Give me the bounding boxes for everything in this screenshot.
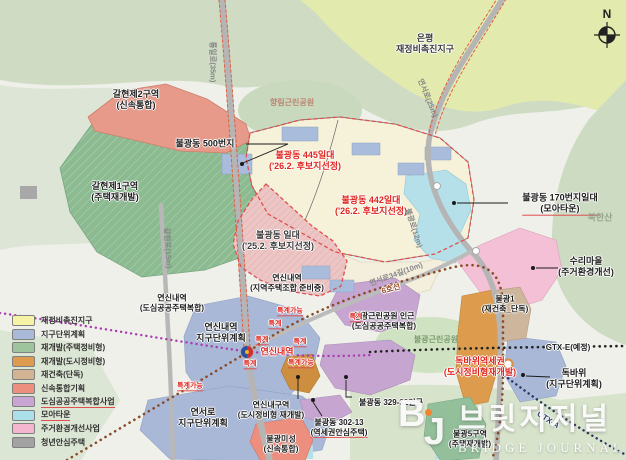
bukhansan-label: 북한산 [588, 213, 613, 224]
legend-label: 재정비촉진지구 [41, 315, 93, 326]
legend-swatch [12, 423, 35, 434]
legend-swatch [12, 383, 35, 394]
teukgye-8-label: 특계가능 [177, 382, 203, 391]
legend-item-2: 재개발(주택정비형) [12, 341, 115, 355]
bulgwang-500-label: 불광동 500번지 [176, 139, 235, 150]
legend-label: 모아타운 [41, 409, 70, 421]
dokbawi-plan-label: 독바위(지구단위계획) [546, 368, 602, 390]
teukgye-7-label: 특계가능 [288, 359, 314, 368]
yeonsinnae-district-plan-label: 연신내역지구단위계획 [196, 322, 246, 344]
legend-item-4: 재건축(단독) [12, 368, 115, 382]
legend-item-3: 재개발(도시정비형) [12, 355, 115, 369]
bulgwang-park-label: 불광근린공원 [414, 335, 458, 345]
compass-icon [594, 20, 620, 50]
bulgwang-329-label: 불광동 329-32인근 [359, 398, 423, 408]
legend-swatch [12, 356, 35, 367]
road-tongilro-label: 통일로(35m) [209, 42, 218, 83]
legend-item-1: 지구단위계획 [12, 328, 115, 342]
legend-label: 재개발(도시정비형) [41, 356, 105, 367]
hyanglim-park-label: 향림근린공원 [270, 98, 314, 108]
legend-item-9: 청년안심주택 [12, 436, 115, 450]
legend-label: 신속통합기획 [41, 383, 85, 394]
yeonsinnae-guyeok-label: 연신내구역(도시정비형 재개발) [238, 400, 304, 419]
legend: 재정비촉진지구지구단위계획재개발(주택정비형)재개발(도시정비형)재건축(단독)… [12, 314, 115, 449]
legend-label: 지구단위계획 [41, 329, 85, 340]
legend-swatch [12, 315, 35, 326]
dokbawi-station-area-label: 독바위역세권(도시정비형재개발) [444, 356, 516, 378]
redevelopment-map: { "legend": { "items": [ {"label":"재정비촉진… [0, 0, 626, 460]
teukgye-6-label: 특계 [244, 360, 257, 369]
bulgwang-302-label: 불광동 302-13(역세권안심주택) [311, 418, 368, 438]
legend-label: 주거환경개선사업 [41, 423, 100, 434]
suri-village-label: 수리마을(주거환경개선) [558, 256, 614, 278]
teukgye-4-label: 특계 [294, 338, 307, 347]
legend-label: 재건축(단독) [41, 369, 83, 380]
legend-item-8: 주거환경개선사업 [12, 422, 115, 436]
legend-item-5: 신속통합기획 [12, 382, 115, 396]
legend-item-7: 모아타운 [12, 409, 115, 423]
teukgye-1-label: 특계가능 [277, 307, 303, 316]
bulgwang-ildae-label: 불광동 일대('25.2. 후보지선정) [242, 230, 314, 252]
yeonsinnae-jujo-label: 연신내역(지역주택조합 준비중) [250, 273, 324, 292]
gtx-e-line-label: GTX-E(예정) [546, 343, 591, 353]
galhyeon1-zone-label: 갈현제1구역(주택재개발) [91, 181, 138, 203]
yeonsinnae-station-symbol [241, 346, 253, 358]
legend-label: 도심공공주택복합사업 [41, 396, 115, 408]
teukgye-5-label: 특계 [350, 313, 363, 322]
legend-item-0: 재정비촉진지구 [12, 314, 115, 328]
bulgwang-miseong-label: 불광미성(신속통합) [264, 434, 299, 453]
yeonsinnae-dosim-label: 연신내역(도심공공주택복합) [140, 293, 204, 312]
yeonsinnae-station-label: 연신내역 [260, 347, 293, 358]
legend-label: 청년안심주택 [41, 437, 85, 448]
legend-item-6: 도심공공주택복합사업 [12, 395, 115, 409]
compass: N [594, 8, 620, 55]
legend-swatch [12, 329, 35, 340]
bulgwang-442-label: 불광동 442일대('26.2. 후보지선정) [335, 195, 407, 217]
galhyeon2-zone-label: 갈현제2구역(신속통합) [113, 89, 159, 111]
eunpyeong-district-label: 은평재정비촉진지구 [396, 33, 454, 55]
bulgwang1-zone-label: 불광1(재건축_단독) [482, 294, 529, 313]
bulgwang-445-label: 불광동 445일대('26.2. 후보지선정) [269, 150, 341, 172]
legend-swatch [12, 369, 35, 380]
bulgwang-170-label: 불광동 170번지일대(모아타운) [522, 193, 597, 216]
teukgye-3-label: 특계 [256, 336, 269, 345]
yeonseo-plan-label: 연서로지구단위계획 [178, 407, 228, 429]
legend-label: 재개발(주택정비형) [41, 342, 105, 353]
legend-swatch [12, 396, 35, 407]
legend-swatch [12, 342, 35, 353]
compass-n-label: N [594, 8, 620, 20]
teukgye-2-label: 특계 [269, 320, 282, 329]
legend-swatch [12, 410, 35, 421]
bulgwang5-zone-label: 불광5구역(주택재개발) [449, 429, 491, 448]
legend-swatch [12, 437, 35, 448]
